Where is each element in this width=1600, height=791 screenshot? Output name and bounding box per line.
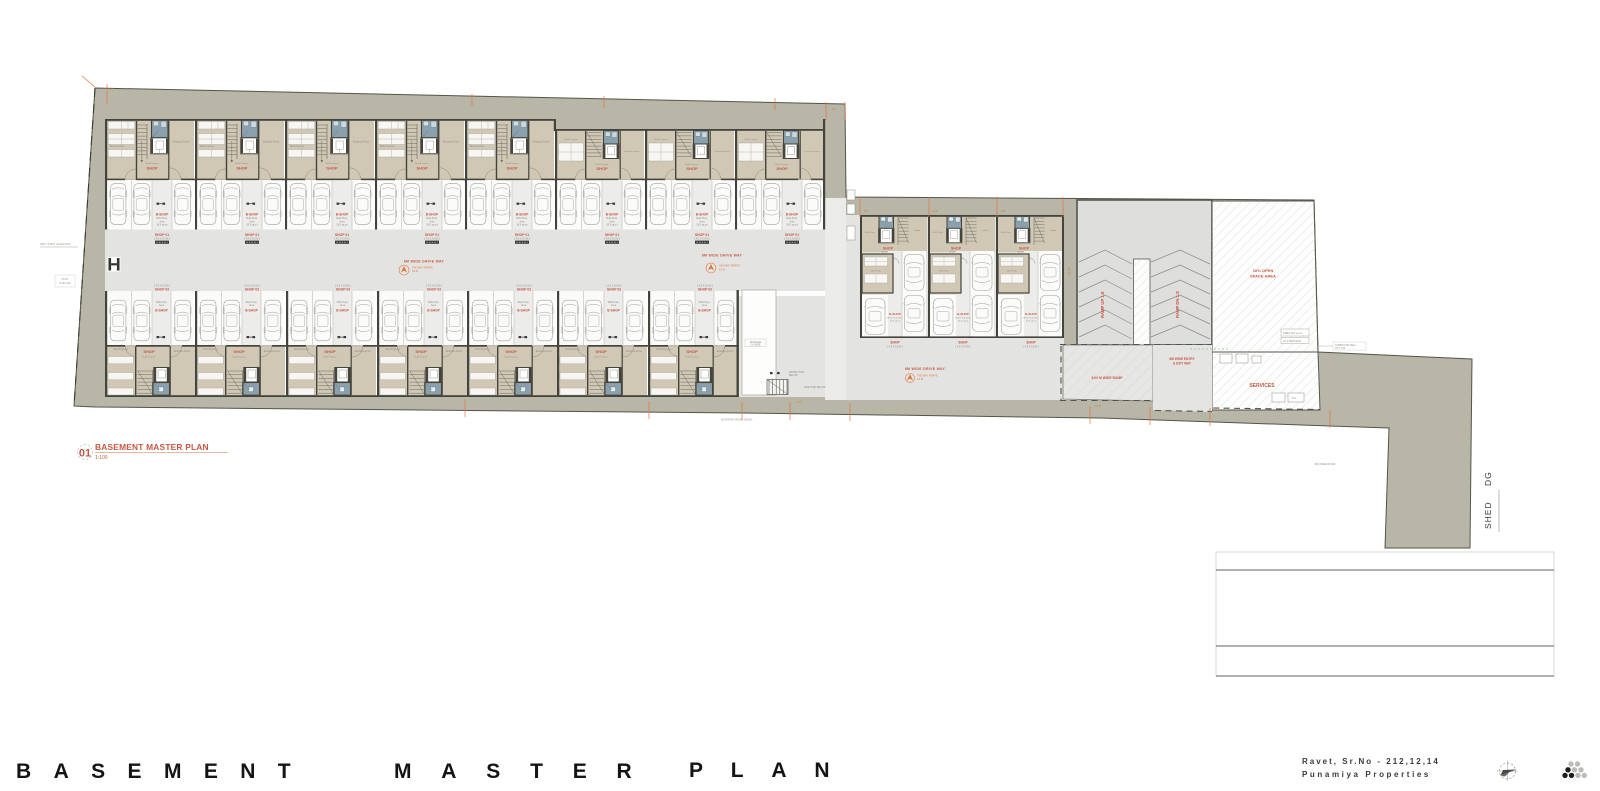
svg-text:EXISTING ROAD LEVEL: EXISTING ROAD LEVEL <box>721 418 753 422</box>
svg-text:FIRE TANK BELOW: FIRE TANK BELOW <box>804 386 826 389</box>
svg-text:MASTER: MASTER <box>394 760 661 783</box>
svg-text:PLAN: PLAN <box>689 759 857 782</box>
svg-text:6.8: 6.8 <box>933 209 938 213</box>
svg-text:BASEMENT MASTER PLAN: BASEMENT MASTER PLAN <box>95 442 209 452</box>
svg-text:S.NO 212: S.NO 212 <box>59 281 71 285</box>
svg-text:13.5: 13.5 <box>1095 404 1101 408</box>
svg-text:2.1: 2.1 <box>832 107 837 111</box>
svg-text:1:100: 1:100 <box>95 455 108 461</box>
svg-text:TWO WAY TRAFFIC: TWO WAY TRAFFIC <box>917 375 939 378</box>
svg-text:TWO WAY TRAFFIC: TWO WAY TRAFFIC <box>719 265 741 268</box>
svg-text:7.5: 7.5 <box>797 400 802 404</box>
svg-text:ADJ. S.NO. 211/2/1A/1: ADJ. S.NO. 211/2/1A/1 <box>40 242 71 246</box>
svg-text:6M WIDE DRIVE WAY: 6M WIDE DRIVE WAY <box>905 367 946 371</box>
svg-text:8.00 M WIDE RAMP: 8.00 M WIDE RAMP <box>1091 376 1123 380</box>
svg-text:6.0 M: 6.0 M <box>917 379 923 381</box>
svg-text:Punamiya Properties: Punamiya Properties <box>1302 770 1431 779</box>
svg-text:BELOW: BELOW <box>789 374 798 377</box>
svg-text:AREA 102 sq.mt: AREA 102 sq.mt <box>1283 331 1302 335</box>
svg-text:SHED: SHED <box>1483 501 1493 529</box>
svg-text:9.0: 9.0 <box>109 87 114 91</box>
svg-text:10% OPEN: 10% OPEN <box>1253 268 1274 273</box>
svg-text:16.40: 16.40 <box>1067 267 1071 275</box>
svg-text:SPACE AREA: SPACE AREA <box>1250 274 1276 279</box>
svg-text:6.0 M: 6.0 M <box>412 271 418 273</box>
svg-text:DG: DG <box>1483 471 1493 486</box>
svg-text:6M WIDE DRIVE WAY: 6M WIDE DRIVE WAY <box>702 254 743 258</box>
svg-text:6.0 M: 6.0 M <box>719 270 725 272</box>
svg-text:9M WIDE ROAD: 9M WIDE ROAD <box>1315 462 1336 466</box>
svg-text:PLOT: PLOT <box>62 277 69 281</box>
svg-text:HT. 1.5 M: HT. 1.5 M <box>1335 347 1345 350</box>
svg-text:6.8: 6.8 <box>1001 209 1006 213</box>
svg-text:RAMP DN 1:8: RAMP DN 1:8 <box>1175 291 1180 318</box>
svg-text:TWO WAY TRAFFIC: TWO WAY TRAFFIC <box>412 267 434 270</box>
svg-text:RAMP UP 1:8: RAMP UP 1:8 <box>1100 291 1105 318</box>
svg-text:6.8: 6.8 <box>864 209 869 213</box>
svg-text:2.0 WIDE: 2.0 WIDE <box>750 344 761 347</box>
svg-text:01: 01 <box>79 448 91 460</box>
svg-text:SERVICES: SERVICES <box>1249 383 1275 389</box>
svg-text:6M WIDE DRIVE WAY: 6M WIDE DRIVE WAY <box>404 260 445 264</box>
svg-text:Ravet, Sr.No - 212,12,14: Ravet, Sr.No - 212,12,14 <box>1302 757 1440 766</box>
svg-text:& EXIT WAY: & EXIT WAY <box>1173 362 1192 366</box>
svg-text:BASEMENT: BASEMENT <box>16 760 313 783</box>
svg-text:6M WIDE ENTRY: 6M WIDE ENTRY <box>1169 357 1195 361</box>
svg-text:10.2 PERCENT: 10.2 PERCENT <box>1283 339 1302 343</box>
svg-text:D.G.: D.G. <box>1292 397 1297 400</box>
svg-text:6.0: 6.0 <box>1215 406 1220 410</box>
